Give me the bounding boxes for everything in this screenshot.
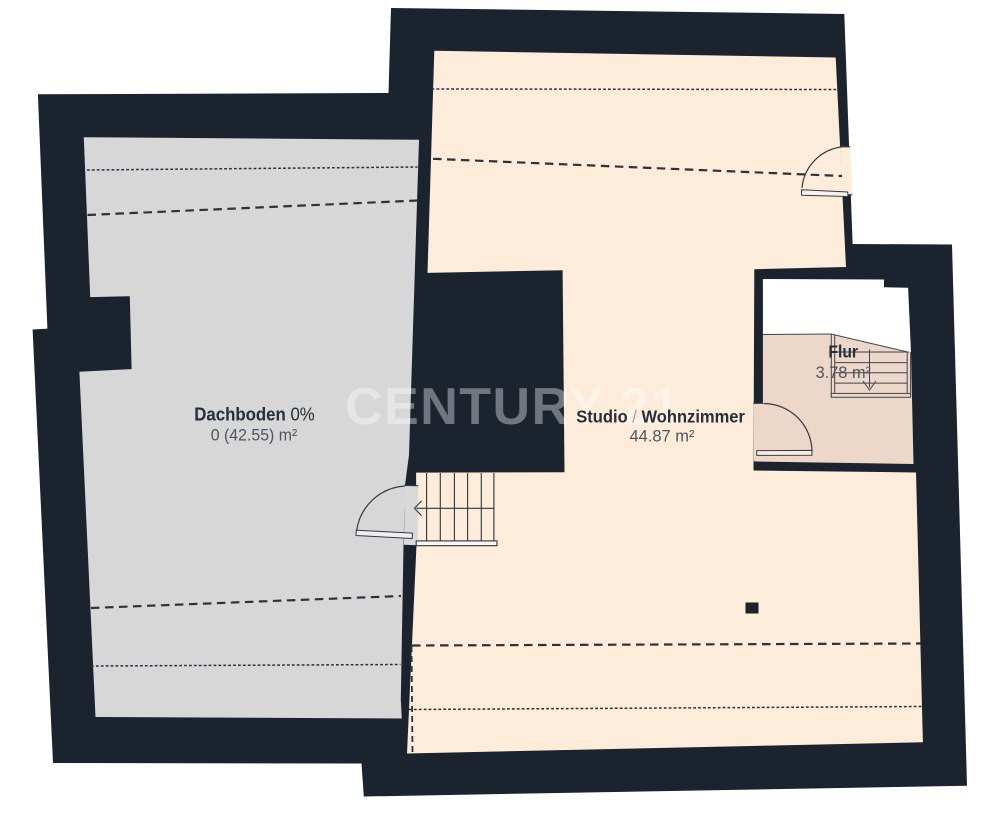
svg-text:44.87 m²: 44.87 m² <box>630 427 695 446</box>
svg-text:3.78 m²: 3.78 m² <box>816 364 872 382</box>
svg-text:0 (42.55) m²: 0 (42.55) m² <box>211 425 298 444</box>
svg-text:Studio / Wohnzimmer: Studio / Wohnzimmer <box>576 407 745 427</box>
svg-text:Flur: Flur <box>828 341 858 361</box>
svg-text:Dachboden 0%: Dachboden 0% <box>194 405 315 425</box>
